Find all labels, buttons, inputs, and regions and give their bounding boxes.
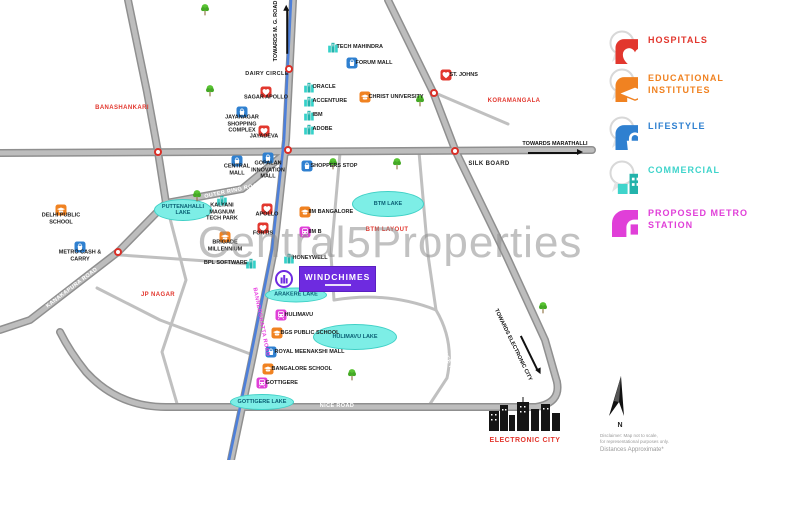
road-junction-dot <box>451 147 459 155</box>
legend-item-lifestyle: LIFESTYLE <box>608 116 778 142</box>
area-label-banashankari: BANASHANKARI <box>95 105 149 111</box>
map-marker-shoppers-stop: SHOPPERS STOP <box>302 161 313 172</box>
marker-label: GOPALAN INNOVATION MALL <box>242 161 294 181</box>
marker-label: IIM BANGALORE <box>309 209 379 216</box>
map-marker-oracle: ORACLE <box>304 82 315 93</box>
map-marker-central-mall: CENTRAL MALL <box>232 156 243 167</box>
marker-label: BRIGADE MILLENNIUM <box>199 240 251 253</box>
electronic-city-block: ELECTRONIC CITY <box>487 397 563 444</box>
road-label-kanakapura-road: KANAKAPURA ROAD <box>45 267 99 310</box>
map-marker-apollo: APOLLO <box>262 204 273 215</box>
map-area: PUTTENAHALLI LAKEBTM LAKEARAKERE LAKEHUL… <box>0 0 800 460</box>
tree-icon <box>539 301 548 319</box>
map-marker-forum-mall: FORUM MALL <box>347 58 358 69</box>
road-label-hosur-road: HOSUR ROAD <box>500 267 524 307</box>
road-label-nice-road: NICE ROAD <box>320 403 354 409</box>
disclaimer: Disclaimer: Map not to scale, for repres… <box>600 433 710 453</box>
map-marker-tech-mahindra: TECH MAHINDRA <box>328 42 339 53</box>
direction-arrow-icon <box>286 10 288 54</box>
city-skyline-icon <box>487 397 563 431</box>
map-marker-gottigere: GOTTIGERE <box>257 378 268 389</box>
building-icon <box>279 274 289 284</box>
tree-icon <box>393 157 402 175</box>
map-marker-sagar-apollo: SAGAR APOLLO <box>261 87 272 98</box>
area-label-btm-layout: BTM LAYOUT <box>366 227 409 233</box>
map-marker-ibm: IBM <box>304 110 315 121</box>
marker-label: DELHI PUBLIC SCHOOL <box>35 213 87 226</box>
map-marker-brigade-millennium: BRIGADE MILLENNIUM <box>220 232 231 243</box>
area-label-silk-board: SILK BOARD <box>468 161 509 167</box>
marker-label: IBM <box>313 112 383 119</box>
road-junction-dot <box>114 248 122 256</box>
map-marker-st-johns: ST. JOHNS <box>441 70 452 81</box>
tree-icon <box>201 3 210 21</box>
area-label-jp-nagar: JP NAGAR <box>141 292 175 298</box>
legend-item-commercial: COMMERCIAL <box>608 160 778 186</box>
legend-item-hospitals: HOSPITALS <box>608 30 778 56</box>
compass-n-label: N <box>600 422 640 429</box>
distances-note: Distances Approximate* <box>600 447 710 453</box>
location-map-page: PUTTENAHALLI LAKEBTM LAKEARAKERE LAKEHUL… <box>0 0 800 509</box>
lifestyle-legend-icon <box>608 116 634 142</box>
legend-label: LIFESTYLE <box>648 120 778 132</box>
marker-label: BGS PUBLIC SCHOOL <box>281 330 351 337</box>
map-marker-bangalore-school: BANGALORE SCHOOL <box>263 364 274 375</box>
map-marker-delhi-public-school: DELHI PUBLIC SCHOOL <box>56 205 67 216</box>
marker-label: TECH MAHINDRA <box>337 44 407 51</box>
marker-label: CHRIST UNIVERSITY <box>369 94 439 101</box>
banner-rule <box>325 284 351 285</box>
map-marker-bpl-software: BPL SOFTWARE <box>246 258 257 269</box>
map-marker-iim-bangalore: IIM BANGALORE <box>300 207 311 218</box>
lake-label: GOTTIGERE LAKE <box>238 399 287 405</box>
lake-gottigere-lake: GOTTIGERE LAKE <box>230 394 294 410</box>
marker-label: APOLLO <box>241 212 293 219</box>
map-marker-jayanagar-shopping-complex: JAYANAGAR SHOPPING COMPLEX <box>237 107 248 118</box>
road-junction-dot <box>154 148 162 156</box>
map-legend: HOSPITALS EDUCATIONAL INSTITUTES LIFESTY… <box>600 0 800 240</box>
electronic-city-label: ELECTRONIC CITY <box>487 437 563 444</box>
map-marker-gopalan-innovation-mall: GOPALAN INNOVATION MALL <box>263 153 274 164</box>
hospital-legend-icon <box>608 30 634 56</box>
commercial-legend-icon <box>608 160 634 186</box>
education-legend-icon <box>608 68 634 94</box>
map-marker-bgs-public-school: BGS PUBLIC SCHOOL <box>272 328 283 339</box>
map-marker-adobe: ADOBE <box>304 124 315 135</box>
legend-item-proposed-metro-station: PROPOSED METRO STATION <box>608 203 778 231</box>
map-marker-accenture: ACCENTURE <box>304 96 315 107</box>
map-marker-hulimavu: HULIMAVU <box>276 310 287 321</box>
towards-label-towards-m-g-road: TOWARDS M. G. ROAD <box>273 1 279 62</box>
legend-item-educational-institutes: EDUCATIONAL INSTITUTES <box>608 68 778 96</box>
marker-label: GOTTIGERE <box>266 380 336 387</box>
tree-icon <box>348 368 357 386</box>
windchimes-banner: WINDCHIMES <box>300 267 375 291</box>
map-marker-iim-b: IIM B <box>300 227 311 238</box>
north-arrow-icon <box>600 375 640 419</box>
map-marker-metro-cash-carry: METRO CASH & CARRY <box>75 242 86 253</box>
marker-label: BPL SOFTWARE <box>178 260 248 267</box>
legend-label: HOSPITALS <box>648 34 778 46</box>
tree-icon <box>206 84 215 102</box>
lake-hulimavu-lake: HULIMAVU LAKE <box>313 324 397 350</box>
map-marker-fortis: FORTIS <box>258 223 269 234</box>
towards-label-towards-electronic-city: TOWARDS ELECTRONIC CITY <box>493 308 533 382</box>
windchimes-pin-icon <box>275 270 293 288</box>
legend-label: PROPOSED METRO STATION <box>648 207 778 231</box>
direction-arrow-icon <box>528 152 578 154</box>
map-marker-honeywell: HONEYWELL <box>284 253 295 264</box>
legend-label: COMMERCIAL <box>648 164 778 176</box>
marker-label: JAYADEVA <box>238 134 290 141</box>
marker-label: METRO CASH & CARRY <box>54 250 106 263</box>
connectivity-bar: CONNECTIVITY Outer Ring Road - 2 kmNice … <box>0 460 800 509</box>
marker-label: SHOPPERS STOP <box>311 163 381 170</box>
project-name: WINDCHIMES <box>305 272 371 282</box>
area-label-koramangala: KORAMANGALA <box>488 98 541 104</box>
map-marker-jayadeva: JAYADEVA <box>259 126 270 137</box>
towards-label-towards-marathalli: TOWARDS MARATHALLI <box>522 141 587 147</box>
marker-label: ORACLE <box>313 84 383 91</box>
marker-label: BANGALORE SCHOOL <box>272 366 342 373</box>
lake-label: ARAKERE LAKE <box>274 292 318 298</box>
road-label-outer-ring-road: OUTER RING ROAD <box>204 182 262 200</box>
marker-label: SAGAR APOLLO <box>240 95 292 102</box>
marker-label: ADOBE <box>313 126 383 133</box>
legend-label: EDUCATIONAL INSTITUTES <box>648 72 778 96</box>
disclaimer-line2: for representational purposes only. <box>600 439 710 445</box>
lake-label: BTM LAKE <box>374 201 402 207</box>
road-junction-dot <box>284 146 292 154</box>
marker-label: HULIMAVU <box>285 312 355 319</box>
marker-label: HONEYWELL <box>293 255 363 262</box>
marker-label: FORTIS <box>237 231 289 238</box>
area-label-dairy-circle: DAIRY CIRCLE <box>245 71 289 77</box>
marker-label: FORUM MALL <box>356 60 426 67</box>
metro-legend-icon <box>608 203 634 229</box>
road-junction-dot <box>430 89 438 97</box>
marker-label: ST. JOHNS <box>450 72 520 79</box>
map-marker-christ-university: CHRIST UNIVERSITY <box>360 92 371 103</box>
compass: N <box>600 375 640 429</box>
marker-label: ROYAL MEENAKSHI MALL <box>275 349 345 356</box>
road-label-nice-road: NICE ROAD <box>441 349 459 383</box>
road-junction-dot <box>285 65 293 73</box>
